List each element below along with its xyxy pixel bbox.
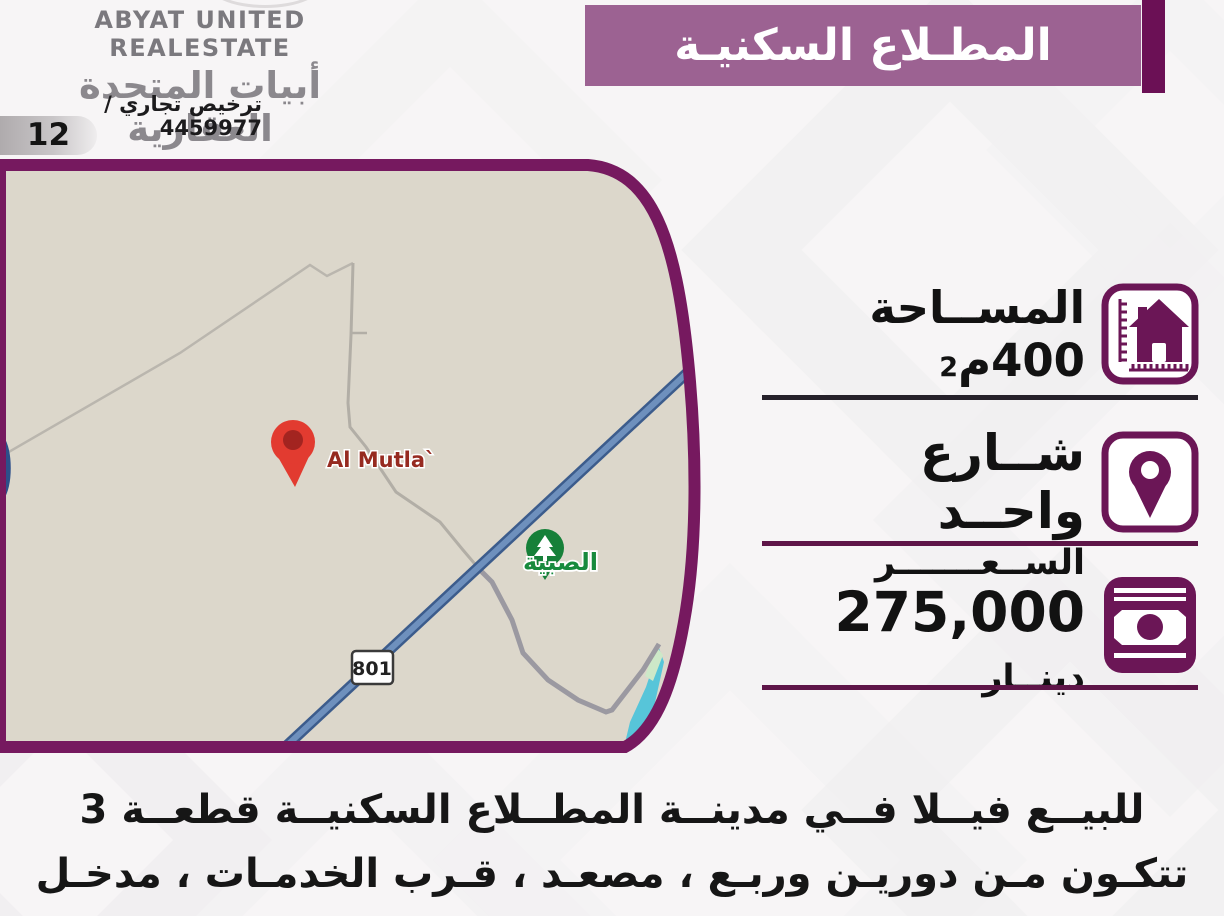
company-name-en: ABYAT UNITED REALESTATE — [0, 6, 400, 62]
map-image: 801 الصبية Al Mutla` — [0, 150, 712, 766]
map-panel: 801 الصبية Al Mutla` — [0, 150, 712, 766]
price-label: الســعـــــــر — [758, 543, 1085, 583]
spec-row-street: شــارع واحــد — [758, 429, 1200, 535]
title-banner: المطـلاع السكنيـة — [585, 5, 1141, 86]
spec-row-price: الســعـــــــر 275,000 دينــار — [758, 571, 1200, 679]
area-text: المســاحة 400م2 — [758, 281, 1085, 387]
corner-badge: 12 — [0, 116, 97, 155]
divider — [762, 395, 1198, 400]
location-pin-icon — [1100, 430, 1200, 534]
area-value: 400 — [991, 334, 1085, 387]
area-unit: م — [958, 334, 991, 387]
divider — [762, 685, 1198, 690]
red-pin-label: Al Mutla` — [327, 448, 436, 472]
house-ruler-icon — [1100, 282, 1200, 386]
svg-text:801: 801 — [352, 658, 392, 680]
description-line-1: للبيــع فيــلا فــي مدينــة المطــلاع ال… — [0, 778, 1224, 842]
park-pin-label: الصبية — [523, 548, 598, 576]
listing-description: للبيــع فيــلا فــي مدينــة المطــلاع ال… — [0, 778, 1224, 916]
price-currency: دينــار — [982, 658, 1085, 698]
price-text: الســعـــــــر 275,000 دينــار — [758, 543, 1085, 707]
route-801-badge: 801 — [352, 651, 393, 684]
area-label: المســاحة — [869, 281, 1085, 334]
banner-accent-bar — [1142, 0, 1165, 93]
banknote-icon — [1100, 573, 1200, 677]
area-unit-sup: 2 — [939, 352, 958, 383]
spec-row-area: المســاحة 400م2 — [758, 281, 1200, 387]
price-value: 275,000 — [834, 580, 1085, 644]
flyer-page: ABYAT UNITED REALESTATE أبيات المتحدة ال… — [0, 0, 1224, 916]
description-line-2: تتكـون مـن دوريـن وربـع ، مصعـد ، قـرب ا… — [0, 842, 1224, 916]
street-text: شــارع واحــد — [758, 424, 1085, 540]
